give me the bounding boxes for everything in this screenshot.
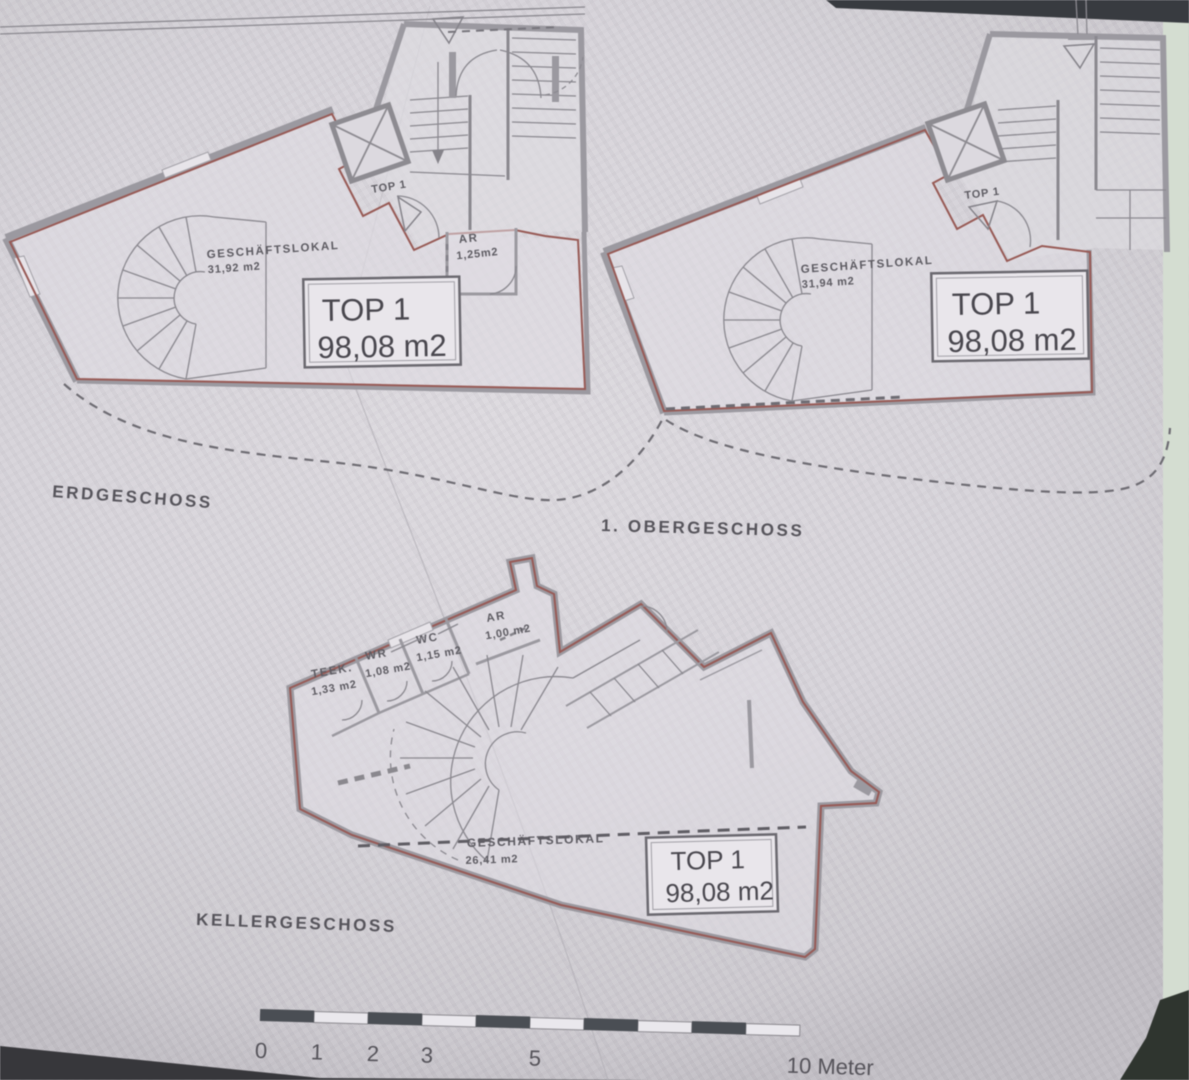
unit-box-area: 98,08 m2 — [665, 875, 774, 908]
site-boundary-dashed — [64, 384, 1170, 500]
unit-box-title: TOP 1 — [321, 292, 410, 329]
scale-label-1: 1 — [311, 1039, 324, 1064]
unit-box-title: TOP 1 — [951, 285, 1040, 322]
unit-box-area: 98,08 m2 — [947, 322, 1077, 359]
scale-segment — [260, 1009, 314, 1023]
floorplan-photo: TOP 1 GESCHÄFTSL — [0, 0, 1189, 1080]
scale-segment — [368, 1012, 422, 1026]
scale-label-10-meter: 10 Meter — [786, 1053, 873, 1080]
unit-area-box: TOP 1 98,08 m2 — [931, 271, 1089, 362]
plan-erdgeschoss: TOP 1 GESCHÄFTSL — [0, 7, 588, 392]
floor-label-kellergeschoss: KELLERGESCHOSS — [196, 910, 397, 936]
plan-kellergeschoss: TEEK. 1,33 m2 WR 1,08 m2 WC 1,15 m2 AR 1… — [290, 558, 879, 957]
floorplan-drawing: TOP 1 GESCHÄFTSL — [0, 0, 1189, 1080]
scale-label-5: 5 — [528, 1046, 541, 1071]
scale-label-0: 0 — [255, 1038, 268, 1063]
scale-segment — [476, 1015, 530, 1029]
scale-label-2: 2 — [367, 1041, 380, 1066]
scale-bar: 0 1 2 3 5 10 Meter — [255, 1009, 875, 1080]
unit-area-box: TOP 1 98,08 m2 — [303, 277, 461, 368]
unit-floor-area — [290, 558, 879, 957]
unit-area-box: TOP 1 98,08 m2 — [646, 834, 778, 914]
plan-obergeschoss: TOP 1 GESCHÄFTSLOKAL 31,94 m2 TOP 1 — [604, 0, 1167, 413]
scale-segment — [692, 1021, 746, 1035]
bottom-right-bezel — [1120, 990, 1189, 1080]
unit-box-title: TOP 1 — [670, 844, 745, 876]
floor-label-erdgeschoss: ERDGESCHOSS — [52, 482, 214, 512]
floor-label-obergeschoss: 1. OBERGESCHOSS — [601, 516, 805, 540]
unit-box-area: 98,08 m2 — [317, 328, 447, 365]
scale-label-3: 3 — [420, 1043, 433, 1068]
svg-text:26,41 m2: 26,41 m2 — [465, 853, 518, 867]
scale-segment — [584, 1018, 638, 1032]
top-bezel — [826, 0, 1189, 23]
bottom-left-bezel — [0, 1046, 650, 1080]
svg-text:AR: AR — [458, 232, 479, 246]
